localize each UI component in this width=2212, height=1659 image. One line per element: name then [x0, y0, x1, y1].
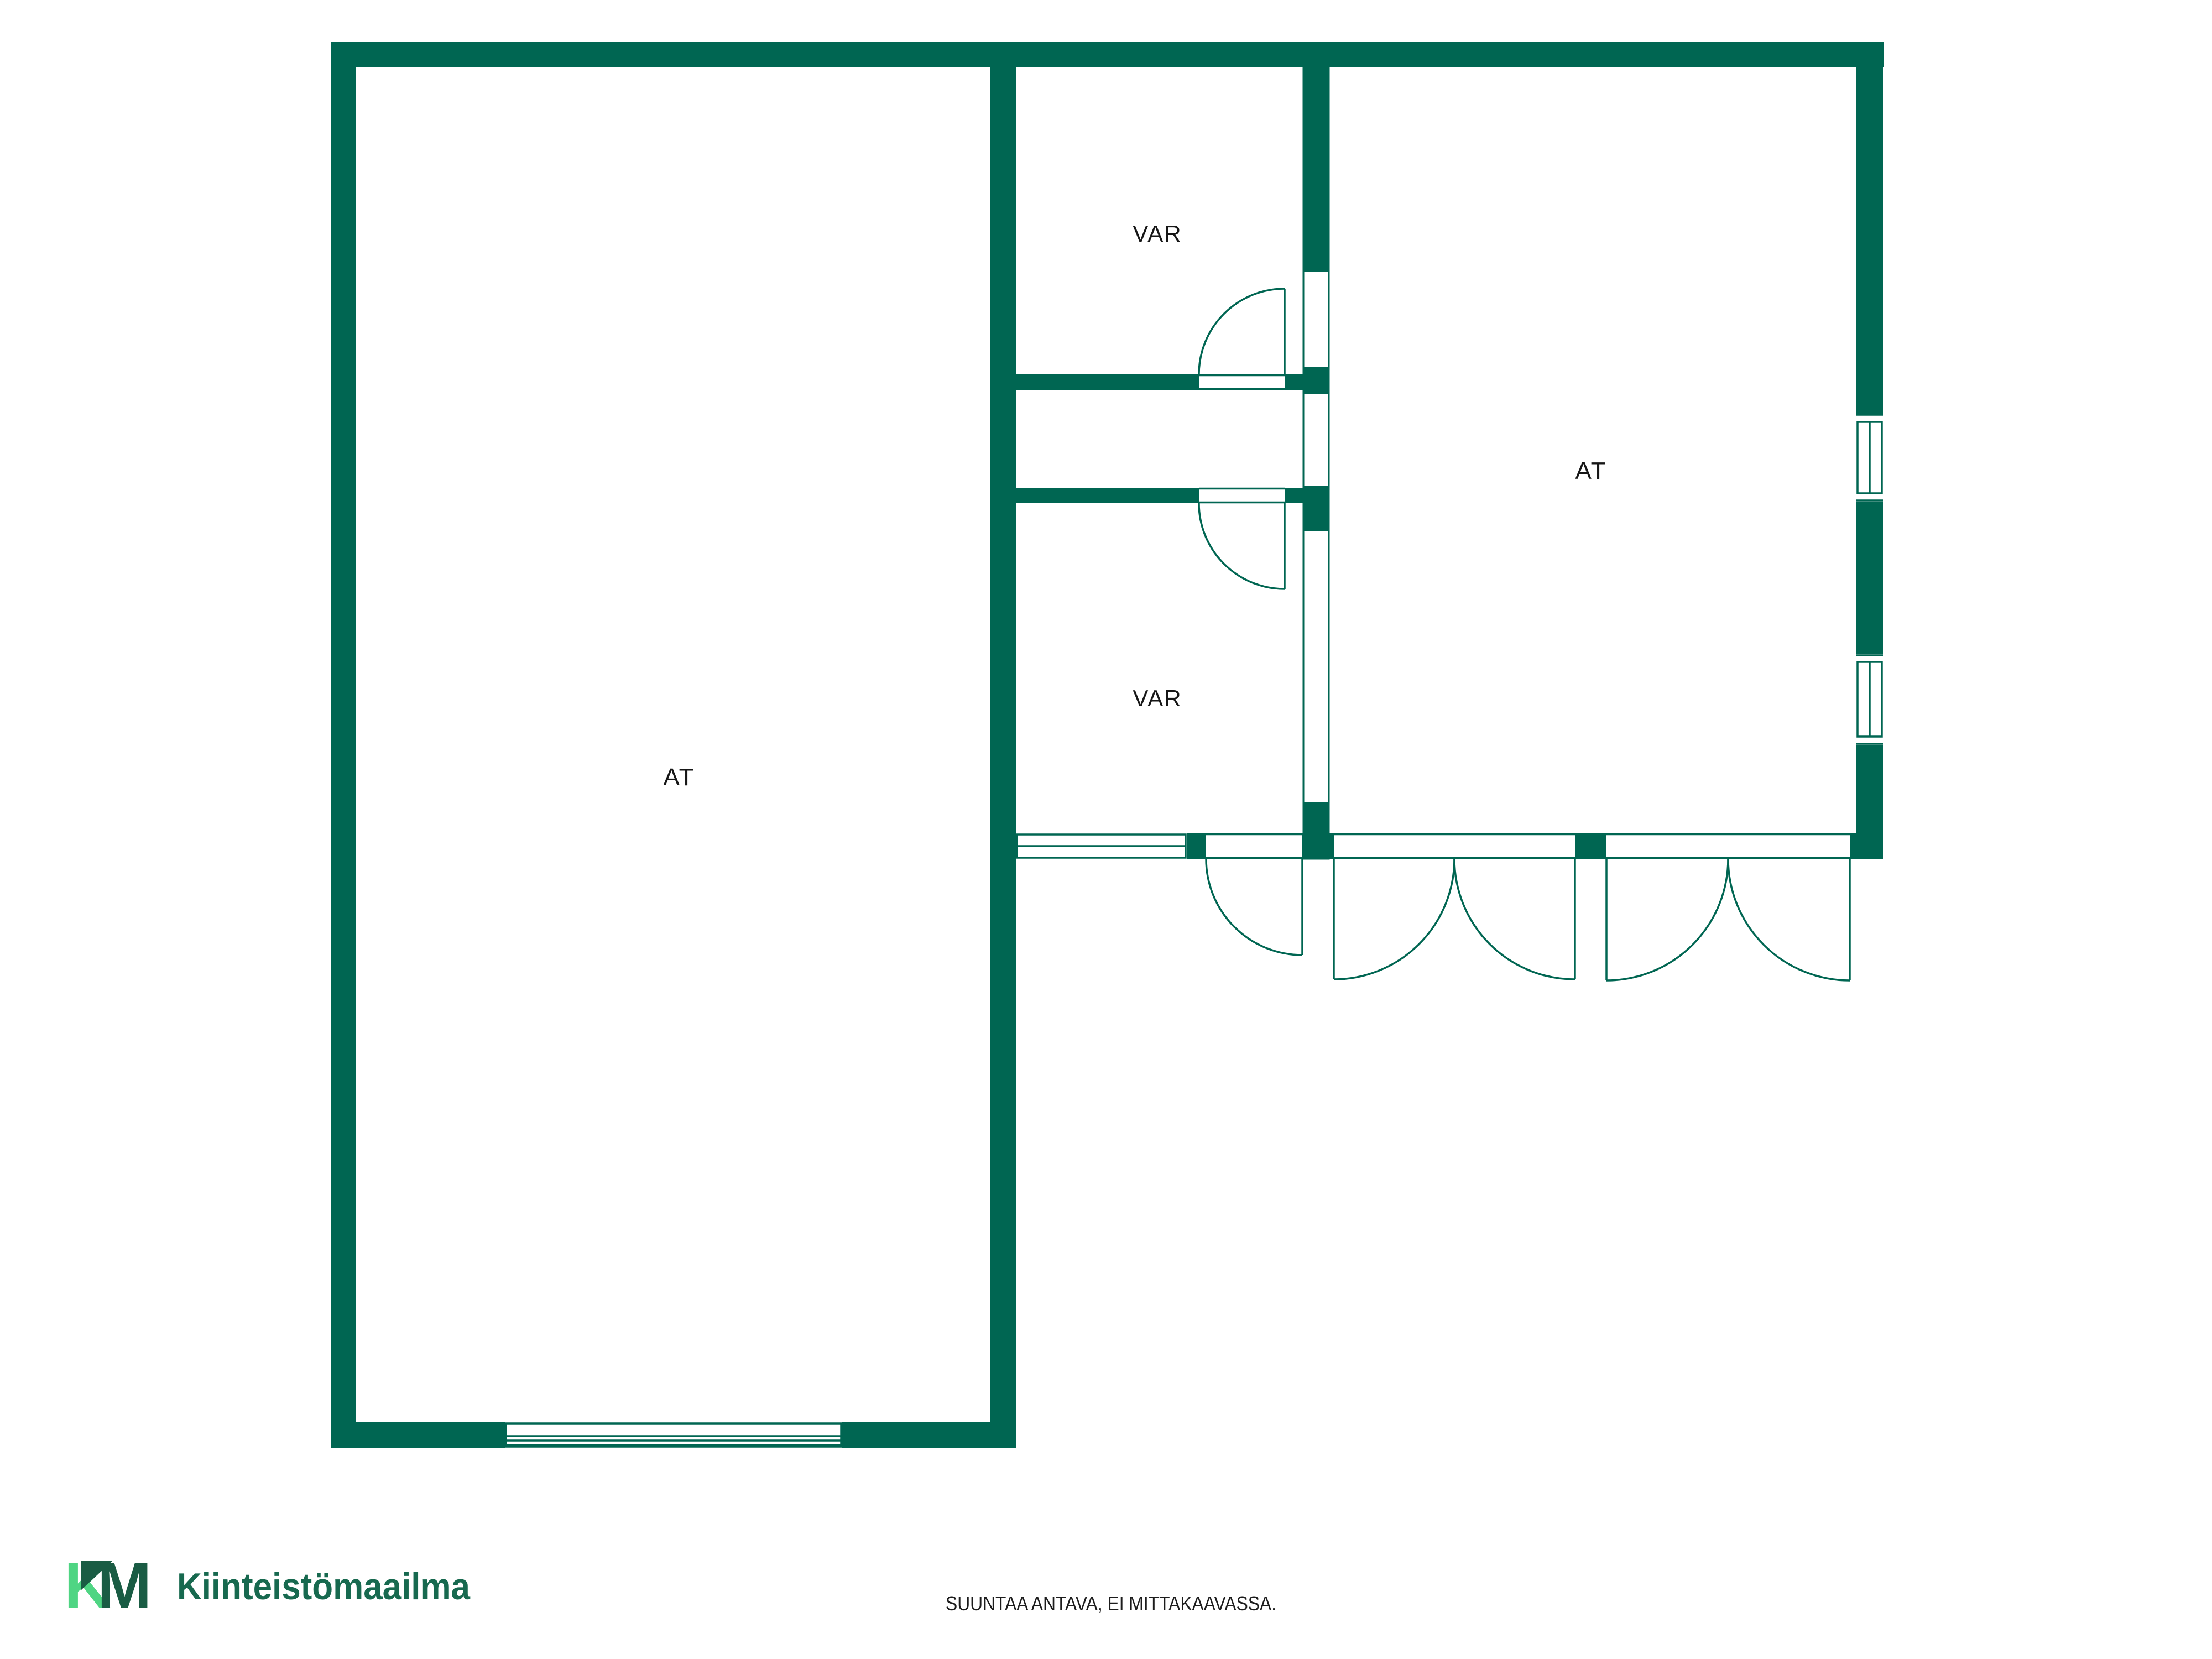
- room-label-var-bottom: VAR: [1133, 685, 1182, 711]
- partition-solid-2: [1303, 367, 1329, 394]
- door-opening-var-bottom: [1199, 488, 1285, 503]
- door-opening-double-b: [1606, 833, 1850, 859]
- wall-pier-3: [1575, 833, 1606, 859]
- wall-top: [331, 42, 1884, 67]
- logo-letter-m: M: [97, 1550, 152, 1623]
- partition-solid-3: [1303, 486, 1329, 531]
- wall-var-bottom-b: [1285, 488, 1303, 503]
- door-opening-double-a: [1334, 833, 1575, 859]
- partition-solid-4: [1303, 802, 1329, 859]
- wall-pier-1: [1187, 833, 1206, 859]
- wall-vertical-1: [990, 67, 1016, 1448]
- floor-plan-canvas: AT VAR VAR AT K M Kiinteistömaailma SUUN…: [0, 0, 2212, 1659]
- room-label-at-left: AT: [664, 764, 695, 791]
- wall-left: [331, 67, 356, 1448]
- room-label-var-top: VAR: [1133, 221, 1182, 247]
- wall-right-middle: [1856, 502, 1883, 654]
- partition-solid-1: [1303, 67, 1329, 272]
- window-opening-bottom-left: [505, 1422, 842, 1448]
- wall-var-top-b: [1285, 374, 1303, 390]
- floor-plan-page: AT VAR VAR AT K M Kiinteistömaailma SUUN…: [0, 0, 2212, 1659]
- wall-pier-4: [1850, 833, 1883, 859]
- wall-var-bottom-a: [1016, 488, 1199, 503]
- room-label-at-right: AT: [1575, 457, 1607, 484]
- door-opening-var-top: [1199, 374, 1285, 390]
- footer-disclaimer: SUUNTAA ANTAVA, EI MITTAKAAVASSA.: [946, 1592, 1276, 1615]
- wall-right-upper: [1856, 67, 1883, 414]
- door-opening-single: [1206, 833, 1302, 859]
- logo-wordmark: Kiinteistömaailma: [177, 1566, 471, 1608]
- wall-var-top-a: [1016, 374, 1199, 390]
- km-logo-mark-icon: K M: [64, 1550, 152, 1623]
